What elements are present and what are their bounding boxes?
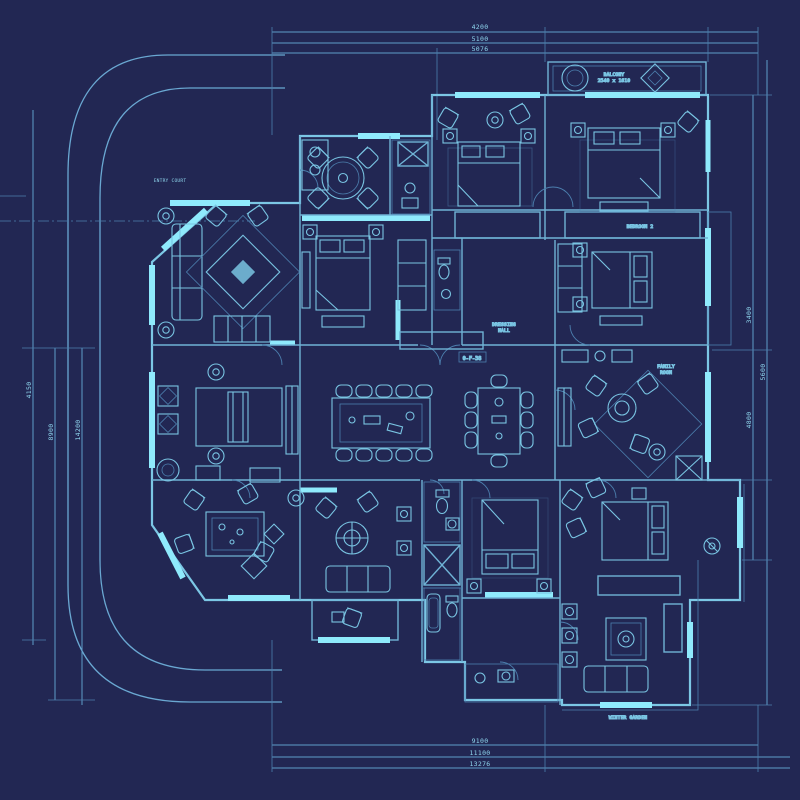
balcony-top: BALCONY 2540 x 1610 [562,64,669,92]
shield-badge-icon [704,538,720,554]
hall-code-label: 0-F-38 [463,356,482,362]
hall-label-1: DRESSING [492,322,516,328]
room-family-sitting: FAMILY ROOM [558,350,702,480]
room-living-topleft [158,205,300,342]
dim-top-2: 5100 [472,35,489,43]
dim-left-2: 8900 [47,424,55,441]
site-boundary-curves: ENTRY COURT [0,55,285,702]
family-room-label-1: FAMILY [657,364,675,370]
dim-top-3: 5076 [472,45,489,53]
dim-left-1: 4150 [25,382,33,399]
room-bedroom-topmiddle [437,103,535,206]
room-living-bottomcenter [315,491,411,628]
room-lounge-left [157,364,298,482]
dim-left-3: 14200 [74,419,82,440]
room-kitchen [302,140,418,209]
room-bedroom-bottomright [561,477,720,560]
room-bedroom-topright [571,111,699,212]
interior-walls [152,95,740,705]
room-bedroom-bottomcenter [467,498,551,593]
room-bedroom-centerleft [302,225,426,327]
dim-right-2: 5600 [759,364,767,381]
dim-bottom-3: 13276 [469,760,490,768]
window-highlights [152,95,740,705]
terrace-label: WINTER GARDEN [609,715,648,721]
fan-x-icon [676,456,702,480]
blueprint-screenshot: ENTRY COURT 4200 5100 5076 9100 11100 13… [0,0,800,800]
dim-right-3: 4800 [745,412,753,429]
rug-diamond [186,215,299,328]
bathrooms-center [427,258,514,683]
dim-top-1: 4200 [472,23,489,31]
dim-bottom-2: 11100 [469,749,490,757]
dim-right-1: 3400 [745,307,753,324]
bedroom-right-label: BEDROOM 2 [627,224,654,230]
hall-label-2: HALL [498,328,510,334]
site-note-label: ENTRY COURT [154,178,187,184]
blueprint-canvas: ENTRY COURT 4200 5100 5076 9100 11100 13… [0,0,800,800]
balcony-label: BALCONY [604,72,625,78]
balcony-size-label: 2540 x 1610 [598,78,631,84]
wardrobe-hanger-rows [400,212,700,652]
room-bedroom-right: BEDROOM 2 [558,224,653,325]
family-room-label-2: ROOM [660,370,672,376]
room-study-bottomleft [174,483,304,579]
dim-bottom-1: 9100 [472,737,489,745]
